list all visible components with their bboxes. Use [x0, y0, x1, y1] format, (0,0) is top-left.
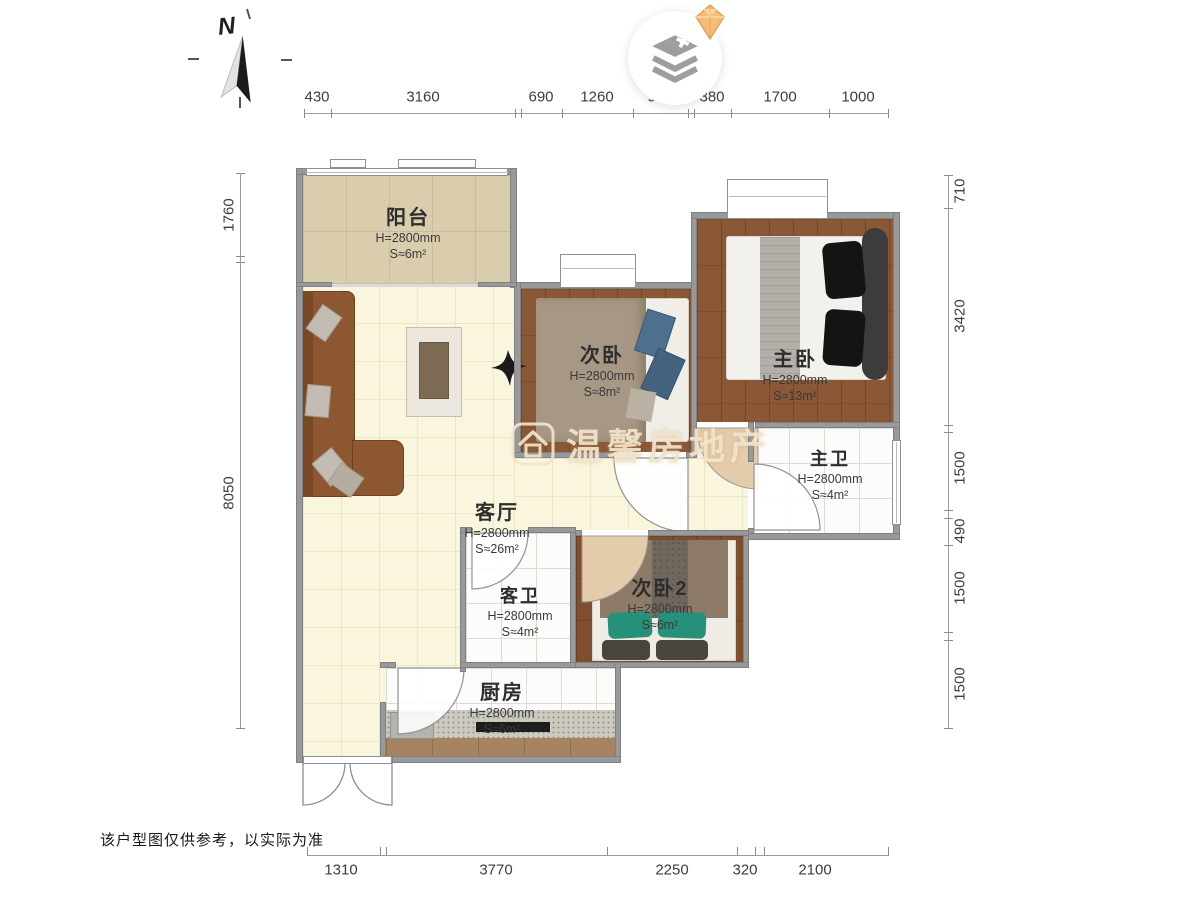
wall-master-bottom: [755, 422, 900, 428]
wall-balcony-divider-left: [296, 282, 332, 287]
balcony-window-sill: [398, 159, 476, 168]
entry-door-threshold: [303, 756, 392, 764]
dim-line-top: [304, 113, 888, 114]
wall-kitchen-top-stub: [380, 662, 396, 668]
wall-guestbath-right: [570, 527, 576, 668]
dim-line-bottom: [307, 855, 888, 856]
house-icon: [510, 421, 556, 467]
watermark: 温馨房地产: [510, 418, 770, 470]
wall-guestbath-left: [460, 527, 466, 672]
plant-decor: [491, 350, 527, 386]
wall-left: [296, 168, 303, 763]
wall-bottom: [392, 756, 621, 763]
master-bath-window-line: [896, 442, 897, 523]
master-window: [727, 179, 828, 219]
floorplan-page: { "page": { "disclaimer": "该户型图仅供参考，以实际为…: [0, 0, 1200, 900]
bedroom2-pillow-small: [626, 388, 657, 422]
dim-line-left: [240, 173, 241, 728]
wall-masterbath-bottom: [748, 533, 900, 540]
bedroom2-window-line: [562, 268, 634, 269]
watermark-brand: 温馨房地产: [566, 418, 771, 470]
bedroom3-pillow-dark: [602, 640, 650, 660]
bedroom3-door-arc: [582, 536, 648, 602]
entry-door-arc-left: [303, 763, 345, 805]
wall-guestbath-top-b: [528, 527, 576, 533]
bedroom3-pillow-dark: [656, 640, 708, 660]
bedroom3-runner: [652, 540, 688, 618]
wall-bedroom3-bottom: [555, 662, 749, 668]
kitchen-door-arc: [398, 668, 464, 734]
wall-bedroom3-top-b: [648, 530, 749, 536]
wall-bedroom3-right: [743, 533, 749, 668]
entry-door-arc-right: [350, 763, 392, 805]
compass-needle-icon: [180, 5, 300, 120]
balcony-window-sill: [330, 159, 366, 168]
wall-kitchen-right: [615, 662, 621, 763]
wall-guestbath-bottom: [460, 662, 576, 668]
compass: N: [180, 5, 300, 120]
wall-guestbath-top-a: [460, 527, 472, 533]
dim-line-right: [948, 175, 949, 728]
wall-kitchen-left: [380, 702, 386, 758]
bedroom2-window: [560, 254, 636, 288]
wall-balcony-right: [510, 168, 517, 288]
bedroom3-pillow-green: [658, 611, 707, 639]
master-pillow: [822, 240, 867, 299]
master-window-line: [729, 196, 826, 197]
balcony-threshold: [332, 283, 478, 287]
bedroom3-pillow-green: [607, 611, 652, 639]
gem-icon[interactable]: [690, 0, 734, 44]
balcony-window-line: [306, 172, 508, 173]
guest-bath-door-arc: [472, 533, 528, 589]
master-pillow: [822, 309, 866, 368]
wall-balcony-divider-right: [478, 282, 517, 287]
disclaimer-text: 该户型图仅供参考，以实际为准: [100, 829, 324, 850]
master-bath-door-arc: [754, 464, 820, 530]
